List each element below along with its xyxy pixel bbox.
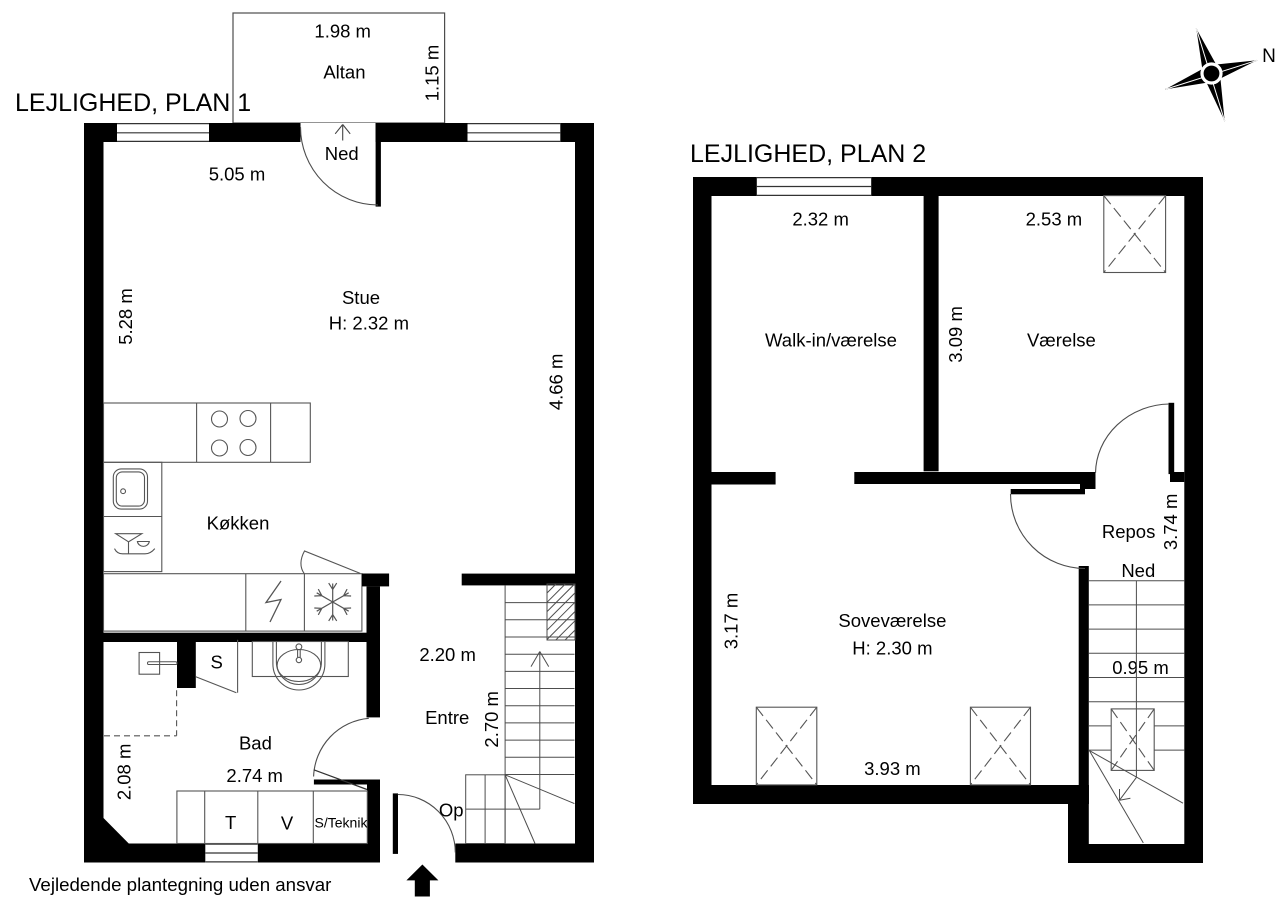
svg-text:H: 2.32 m: H: 2.32 m <box>329 313 409 334</box>
svg-text:S: S <box>211 652 223 673</box>
svg-text:Ned: Ned <box>325 143 359 164</box>
svg-text:S/Teknik: S/Teknik <box>315 815 369 831</box>
svg-text:5.05 m: 5.05 m <box>209 164 266 185</box>
svg-text:LEJLIGHED, PLAN 2: LEJLIGHED, PLAN 2 <box>690 140 926 168</box>
svg-text:V: V <box>281 813 294 834</box>
svg-text:5.28 m: 5.28 m <box>115 288 136 345</box>
svg-text:Walk-in/værelse: Walk-in/værelse <box>765 330 897 351</box>
svg-text:3.74 m: 3.74 m <box>1160 494 1181 551</box>
svg-text:Ned: Ned <box>1121 560 1155 581</box>
svg-text:2.08 m: 2.08 m <box>114 744 135 801</box>
svg-text:LEJLIGHED, PLAN 1: LEJLIGHED, PLAN 1 <box>15 89 251 117</box>
svg-text:2.74 m: 2.74 m <box>226 765 283 786</box>
svg-text:3.09 m: 3.09 m <box>945 306 966 363</box>
svg-text:T: T <box>225 812 236 833</box>
svg-text:2.20 m: 2.20 m <box>419 644 476 665</box>
svg-text:Repos: Repos <box>1102 521 1155 542</box>
svg-text:H: 2.30 m: H: 2.30 m <box>852 638 932 659</box>
svg-text:Vejledende plantegning uden an: Vejledende plantegning uden ansvar <box>29 874 331 895</box>
svg-text:Stue: Stue <box>342 287 380 308</box>
svg-text:3.17 m: 3.17 m <box>720 593 741 650</box>
svg-text:0.95 m: 0.95 m <box>1112 657 1169 678</box>
svg-text:2.53 m: 2.53 m <box>1026 208 1083 229</box>
svg-text:Altan: Altan <box>323 62 365 83</box>
svg-text:Køkken: Køkken <box>207 513 270 534</box>
svg-text:1.98 m: 1.98 m <box>314 21 371 42</box>
svg-text:4.66 m: 4.66 m <box>545 354 566 411</box>
svg-text:N: N <box>1262 46 1276 67</box>
svg-text:Værelse: Værelse <box>1027 330 1096 351</box>
svg-text:Op: Op <box>439 800 464 821</box>
svg-text:Bad: Bad <box>239 732 272 753</box>
svg-text:Soveværelse: Soveværelse <box>838 610 946 631</box>
svg-text:Entre: Entre <box>425 707 469 728</box>
svg-text:2.32 m: 2.32 m <box>792 208 849 229</box>
svg-text:2.70 m: 2.70 m <box>481 691 502 748</box>
svg-text:1.15 m: 1.15 m <box>421 45 442 102</box>
svg-text:3.93 m: 3.93 m <box>864 758 921 779</box>
